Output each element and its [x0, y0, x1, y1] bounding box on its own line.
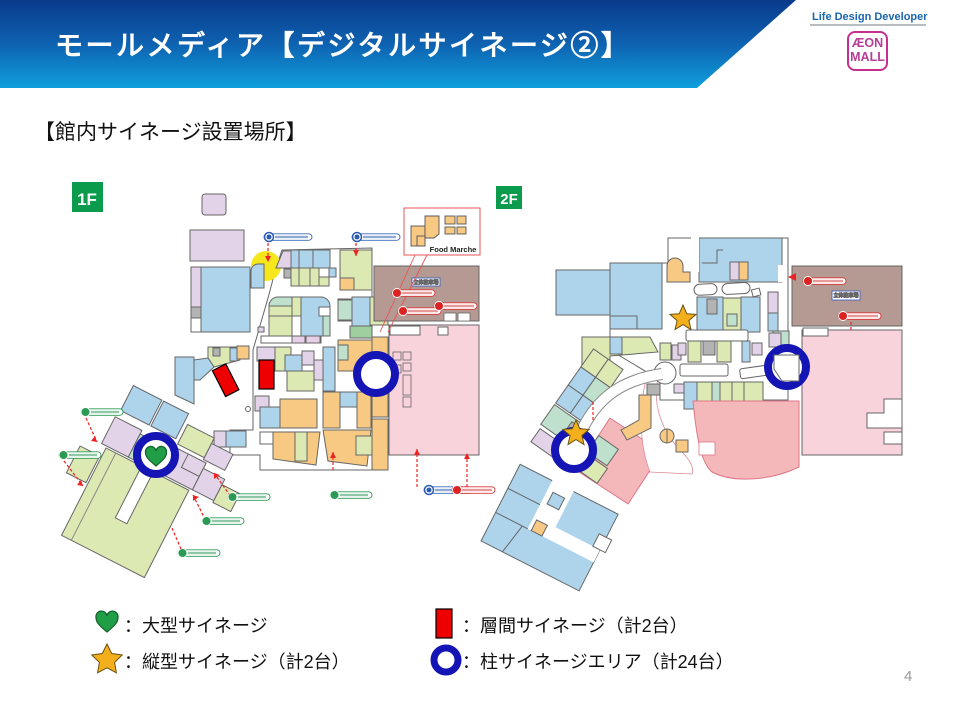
- svg-text:立体駐車場: 立体駐車場: [833, 292, 858, 299]
- svg-text:立体駐車場: 立体駐車場: [413, 279, 438, 286]
- svg-text:1F: 1F: [77, 190, 97, 209]
- svg-text:Food Marche: Food Marche: [430, 245, 477, 254]
- svg-text:2F: 2F: [500, 191, 518, 208]
